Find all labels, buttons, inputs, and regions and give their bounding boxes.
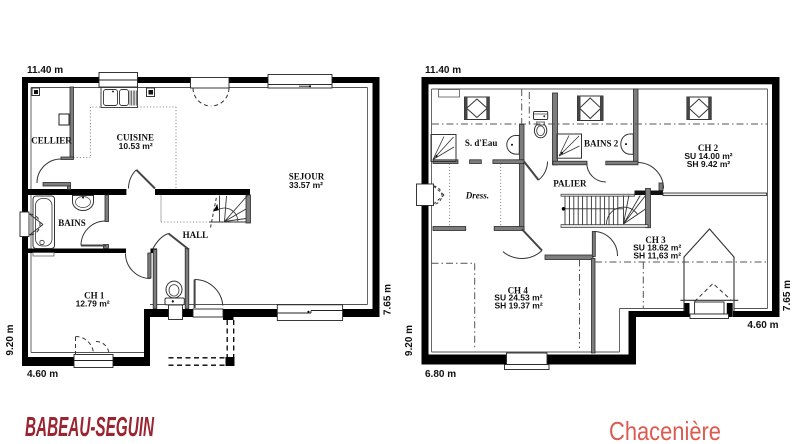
svg-text:11.40 m: 11.40 m (27, 65, 63, 76)
svg-text:7.65 m: 7.65 m (383, 284, 394, 315)
svg-text:CELLIER: CELLIER (31, 135, 72, 145)
svg-text:PALIER: PALIER (553, 178, 587, 188)
svg-text:9.20 m: 9.20 m (5, 324, 16, 355)
svg-text:6.80 m: 6.80 m (425, 369, 456, 380)
svg-text:BABEAU-SEGUIN: BABEAU-SEGUIN (25, 411, 155, 442)
svg-text:BAINS: BAINS (58, 218, 86, 228)
svg-text:Chacenière: Chacenière (609, 416, 721, 444)
svg-text:12.79 m²: 12.79 m² (76, 299, 110, 309)
svg-text:S. d'Eau: S. d'Eau (465, 138, 498, 148)
svg-text:SH 11,63 m²: SH 11,63 m² (633, 251, 681, 261)
svg-text:33.57 m²: 33.57 m² (289, 180, 323, 190)
svg-text:SH 9.42 m²: SH 9.42 m² (687, 159, 731, 169)
svg-text:Dress.: Dress. (465, 190, 489, 200)
svg-text:BAINS 2: BAINS 2 (584, 138, 619, 148)
svg-text:SH 19.37 m²: SH 19.37 m² (494, 301, 542, 311)
svg-text:4.60 m: 4.60 m (27, 369, 58, 380)
svg-text:10.53 m²: 10.53 m² (119, 141, 153, 151)
svg-text:9.20 m: 9.20 m (404, 325, 415, 356)
svg-text:HALL: HALL (183, 230, 209, 240)
svg-text:7.65 m: 7.65 m (782, 280, 793, 311)
svg-text:11.40 m: 11.40 m (425, 65, 461, 76)
svg-text:4.60 m: 4.60 m (747, 320, 778, 331)
